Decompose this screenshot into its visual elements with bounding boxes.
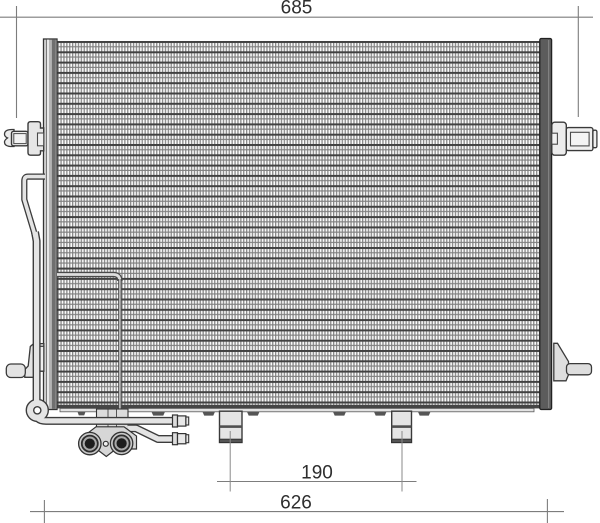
svg-text:626: 626 <box>280 492 312 513</box>
svg-text:190: 190 <box>301 463 333 484</box>
svg-text:685: 685 <box>281 0 313 19</box>
